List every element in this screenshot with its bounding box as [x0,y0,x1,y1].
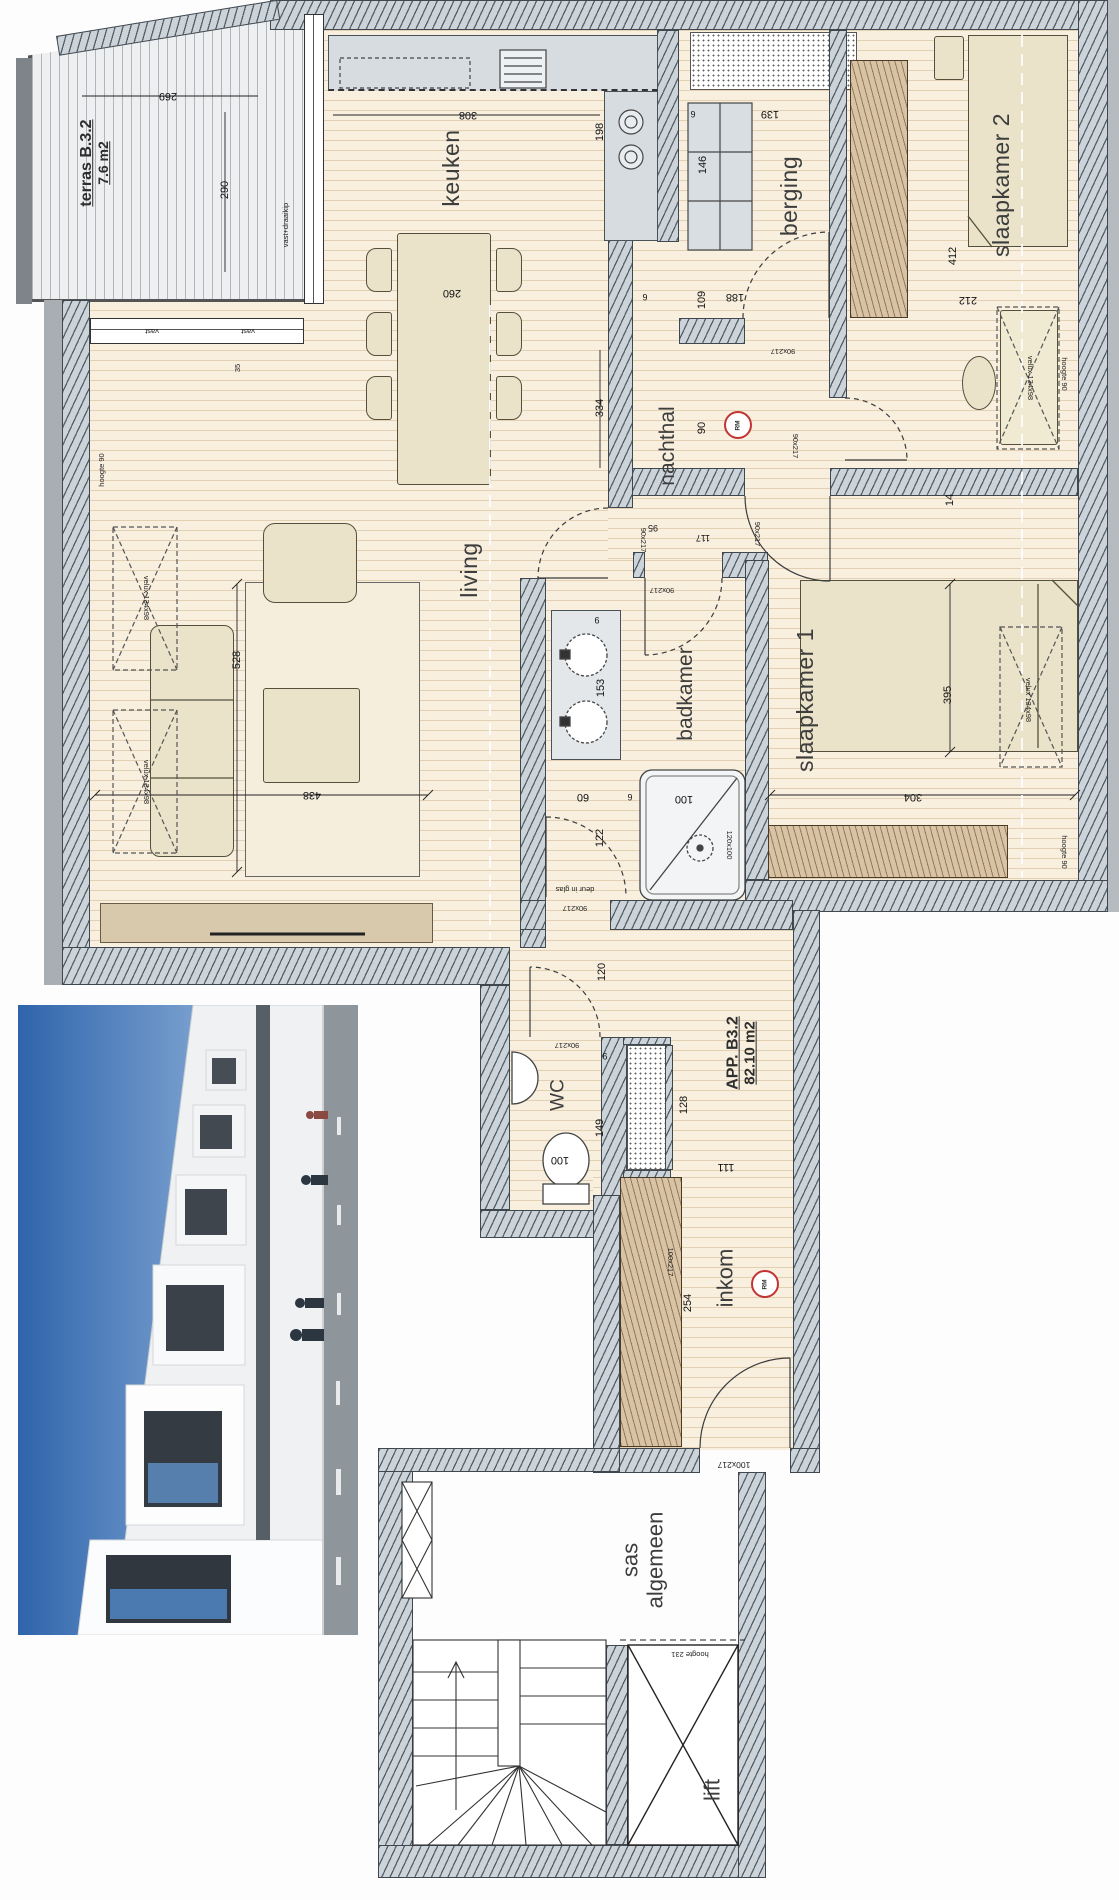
smoke-detector: RM [724,411,752,439]
dim-395: 395 [942,686,954,704]
dim-100: 100 [675,793,693,805]
wall [829,30,847,398]
dim-90: 90 [696,422,708,434]
dining-chair [496,312,522,356]
dining-table [397,233,491,485]
wall [793,910,820,1473]
dim-528: 528 [231,651,243,669]
bed-slaapkamer1 [800,580,1078,752]
wall [738,1472,766,1878]
door-size: 90x217 [650,586,675,594]
tag-velux: velux 134x98 [142,576,150,620]
dim-9: 9 [602,1051,607,1061]
room-label-slaapkamer1: slaapkamer 1 [793,628,819,772]
door-size: 90x217 [753,522,761,547]
window-keuken-terras [304,14,324,304]
room-label-badkamer: badkamer [674,647,698,740]
door-size: 90x217 [791,434,799,459]
wall [520,900,546,930]
rm-text: RM [761,1279,768,1289]
dim-6: 6 [642,292,647,302]
nightstand [934,36,964,80]
dim-122: 122 [594,829,606,847]
door-size-100: 100x217 [666,1248,674,1277]
wall [378,1448,620,1472]
tag-hoogte90: hoogte 90 [98,453,106,486]
dim-95: 95 [648,523,658,533]
wall [608,240,633,508]
dim-304: 304 [904,791,922,803]
tag-hoogte90: hoogte 90 [1060,357,1068,390]
tag-velux: velux 134x98 [1024,678,1032,722]
edge-strip-left [44,300,62,985]
room-label-living: living [457,542,483,597]
kitchen-counter-top [328,35,658,91]
dim-438: 438 [303,789,321,801]
dim-109: 109 [696,291,708,309]
wall [623,1037,671,1045]
room-label-slaapkamer2: slaapkamer 2 [989,113,1015,257]
tag-hoogte90: hoogte 90 [1060,835,1068,868]
wardrobe-slaapkamer1 [768,825,1008,878]
wall [378,1448,413,1878]
tag-hoogte231: hoogte 231 [671,1650,709,1658]
door-size-100: 100x217 [718,1459,751,1469]
door-size-berging: 90x217 [771,347,796,355]
dim-153: 153 [595,679,607,697]
apartment-area: 82.10 m2 [743,1016,760,1090]
desk-chair [962,356,996,410]
wall [790,1448,820,1473]
coffee-table [263,688,360,783]
dim-139: 139 [761,108,779,120]
bed-slaapkamer2 [968,35,1068,247]
dining-chair [366,248,392,292]
dim-117: 117 [696,533,710,543]
dim-120: 120 [596,963,608,981]
wall [270,0,1108,30]
kitchen-counter-side [604,91,658,241]
dining-chair [366,376,392,420]
tag-vast: vast [145,327,159,335]
terras-deck [28,12,324,302]
sas-line1: sas [618,1512,643,1609]
dim-9: 9 [594,615,599,625]
door-size: 90x217 [639,528,647,553]
room-label-lift: lift [701,1779,726,1801]
wall [633,552,645,578]
door-size: 90x217 [555,1041,580,1049]
sideboard [100,903,433,943]
wardrobe-inkom [620,1177,682,1447]
apartment-title: APP. B3.2 82.10 m2 [725,1016,760,1090]
terras-name: terras B.3.2 [78,119,96,206]
dim-290: 290 [219,181,231,199]
tag-vast-draaikip: vast+draaikip [282,203,290,247]
wall [520,578,546,948]
dining-chair [366,312,392,356]
room-label-sas: sas algemeen [618,1512,667,1609]
rm-text: RM [734,420,741,430]
window-living-terras [90,318,304,344]
dim-308: 308 [459,109,477,121]
wall [606,1645,628,1845]
render-photo-graphic [18,1005,358,1635]
dim-188: 188 [726,291,744,303]
wall [62,300,90,985]
wall [830,468,1078,496]
dim-212: 212 [959,294,977,306]
dim-254: 254 [682,1294,694,1312]
tag-vast: vast [241,327,255,335]
room-label-inkom: inkom [714,1249,739,1308]
dim-269: 269 [159,90,177,102]
wall [679,318,745,344]
dim-14: 14 [944,494,956,506]
room-label-berging: berging [777,156,803,236]
shaft-dotted [627,1045,667,1170]
floorplan-sheet: terras B.3.2 7.6 m2 269 290 vast+draaiki… [0,0,1119,1900]
terras-area: 7.6 m2 [96,119,112,206]
room-label-keuken: keuken [439,129,465,206]
dim-35: 35 [234,364,242,372]
wall [593,1195,620,1450]
door-size: 90x217 [563,904,588,912]
dim-260: 260 [443,287,461,299]
tag-deur-glas: deur in glas [556,885,595,893]
room-label-wc: WC [547,1079,568,1111]
dim-60: 60 [577,791,589,803]
dim-198: 198 [594,123,606,141]
wall [745,560,769,880]
wardrobe-slaapkamer2 [850,60,908,318]
building-render-photo [18,1005,358,1635]
wall [480,985,510,1210]
apartment-name: APP. B3.2 [725,1016,743,1090]
dim-6: 6 [690,109,695,119]
wall [665,1045,673,1170]
wall [62,947,510,985]
armchair [263,523,357,603]
dim-128: 128 [678,1096,690,1114]
edge-strip-right [1108,0,1119,912]
wall [745,880,1108,912]
dim-111: 111 [718,1161,735,1173]
tag-velux: velux 134x98 [1026,356,1034,400]
dim-146: 146 [697,156,709,174]
wall [1078,0,1108,912]
wall [657,30,679,242]
edge-strip-terras [16,58,32,304]
smoke-detector: RM [751,1270,779,1298]
tag-velux: velux 134x98 [142,760,150,804]
dim-100: 100 [551,1154,569,1166]
wall [378,1845,760,1878]
dining-chair [496,376,522,420]
dim-412: 412 [947,247,959,265]
dining-chair [496,248,522,292]
sofa [150,625,234,857]
tag-shower-size: 120x100 [725,831,733,860]
dim-6: 6 [627,792,632,802]
dim-334: 334 [594,399,606,417]
room-label-terras: terras B.3.2 7.6 m2 [78,119,112,206]
sas-line2: algemeen [643,1512,668,1609]
wall [610,900,793,930]
bathroom-vanity [551,610,621,760]
room-label-nachthal: nachthal [656,406,680,485]
dim-149: 149 [594,1119,606,1137]
